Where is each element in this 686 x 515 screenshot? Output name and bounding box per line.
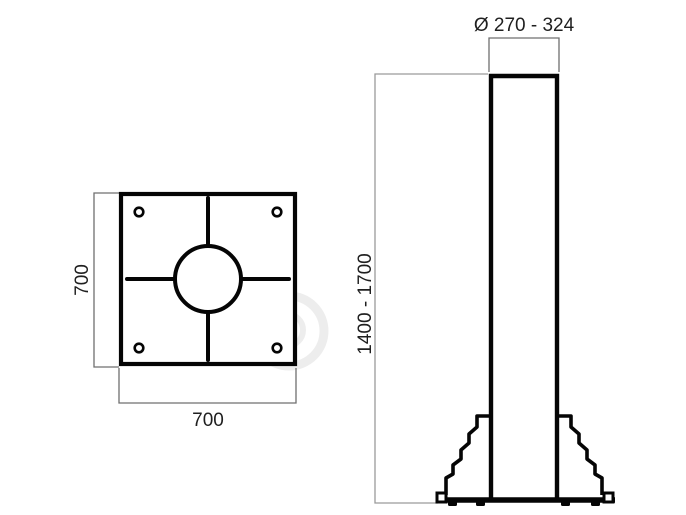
anchor-foot [476,501,485,506]
technical-drawing: 700 700 [0,0,686,515]
gusset-right [559,416,602,495]
bolt-hole-top-left [135,208,144,217]
anchor-foot [591,501,600,506]
bolt-hole-bottom-left [135,344,144,353]
anchor-foot [561,501,570,506]
side-view: 1400 - 1700 Ø 270 - 324 [355,15,615,506]
bolt-hole-bottom-right [273,344,282,353]
pole-body [491,76,557,499]
anchor-foot [448,501,457,506]
center-hole [175,246,241,312]
pole-diameter-label: Ø 270 - 324 [474,15,575,36]
anchor-block-left [437,493,446,502]
anchor-block-right [604,493,613,502]
plate-width-label: 700 [192,410,224,431]
plate-depth-label: 700 [72,264,93,296]
drawing-canvas: 700 700 [0,0,686,515]
top-view: 700 700 [72,193,296,431]
pole-diameter-dimension-bracket [489,38,559,72]
plate-depth-dimension-bracket [94,193,119,367]
bolt-hole-top-right [273,208,282,217]
gusset-left [446,416,489,495]
plate-width-dimension-bracket [119,368,296,403]
pole-height-label: 1400 - 1700 [355,253,376,354]
